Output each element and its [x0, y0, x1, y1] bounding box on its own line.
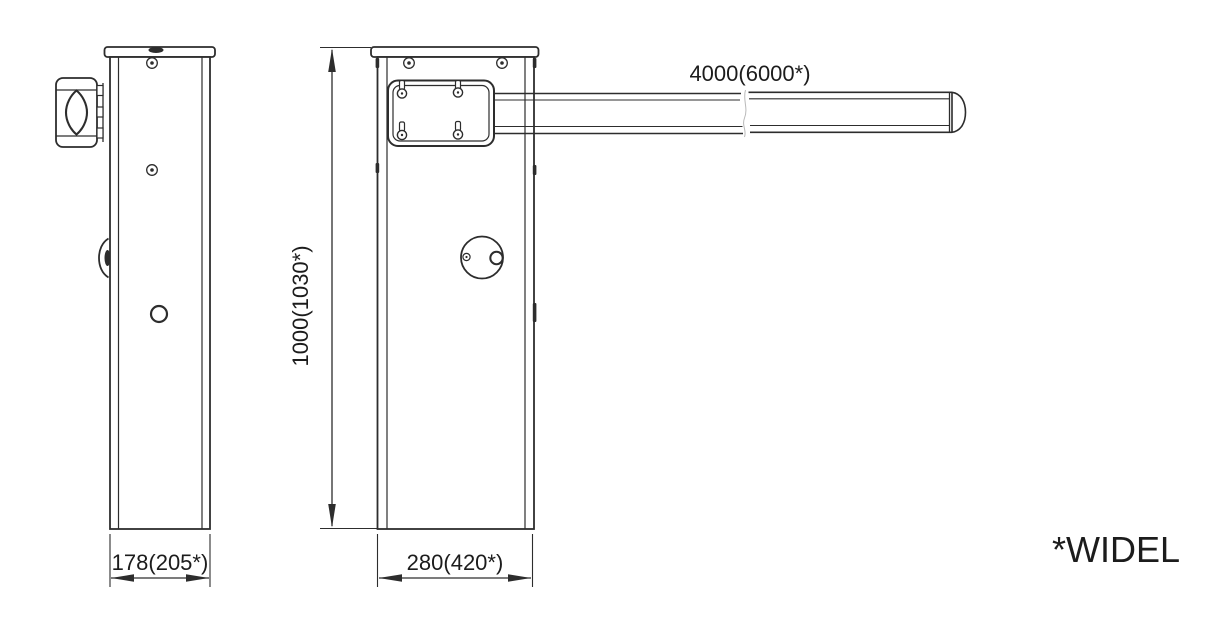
front-view: 1000(1030*) 280(420*) 4000(6000*): [288, 47, 966, 587]
bracket-tab: [97, 86, 103, 96]
hinge-mark: [376, 58, 380, 68]
hinge-mark: [533, 58, 537, 68]
boom-end-cap: [952, 92, 966, 132]
boom-mount-plate: [388, 81, 494, 147]
boom-length-label: 4000(6000*): [689, 61, 810, 86]
front-cabinet-cap: [371, 47, 539, 57]
technical-drawing: 178(205*): [0, 0, 1214, 632]
cabinet-width-label: 280(420*): [407, 550, 504, 575]
dimension-arrow-right: [508, 574, 531, 582]
dimension-arrow-down: [328, 504, 336, 528]
lock-screw-dot: [465, 256, 467, 258]
dimension-arrow-up: [328, 49, 336, 73]
bracket-tab: [97, 128, 103, 138]
hinge-mark: [376, 163, 380, 173]
dim-cabinet-depth: 178(205*): [110, 534, 210, 587]
cap-vent-icon: [149, 47, 164, 53]
dimension-extension-lines: [320, 48, 377, 529]
drawing-canvas: 178(205*): [0, 0, 1214, 632]
side-view: 178(205*): [56, 47, 215, 587]
cabinet-height-label: 1000(1030*): [288, 245, 313, 366]
hinge-mark: [533, 165, 537, 175]
hinge-mark: [533, 303, 537, 322]
hinge-bump: [99, 239, 111, 278]
cabinet-depth-label: 178(205*): [112, 550, 209, 575]
dim-cabinet-height: 1000(1030*): [288, 48, 377, 529]
bracket-tab: [97, 107, 103, 117]
dim-cabinet-width: 280(420*): [378, 534, 533, 587]
dimension-arrow-left: [111, 574, 134, 582]
bracket-housing: [56, 78, 97, 147]
dimension-arrow-left: [379, 574, 402, 582]
dimension-arrow-right: [186, 574, 209, 582]
side-cabinet-body: [110, 57, 210, 529]
boom-right-segment-inner: [749, 99, 950, 126]
footnote-widel: *WIDEL: [1052, 529, 1180, 570]
boom-bracket: [56, 78, 103, 147]
boom-break-line: [744, 90, 746, 137]
boom-arm: [494, 90, 966, 137]
